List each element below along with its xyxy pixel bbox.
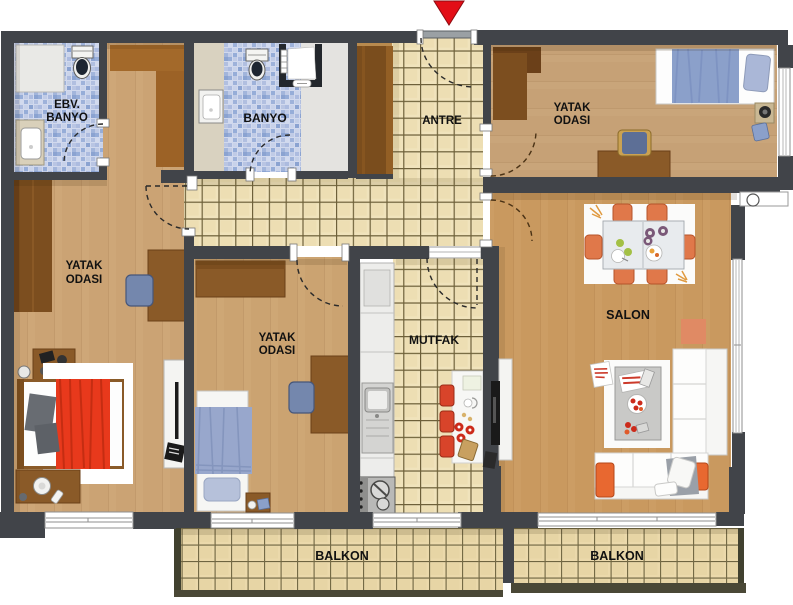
svg-text:BANYO: BANYO [243, 111, 286, 125]
svg-text:EBV.: EBV. [54, 99, 80, 111]
svg-text:BALKON: BALKON [315, 549, 368, 563]
svg-text:ODASI: ODASI [66, 274, 102, 286]
svg-text:BANYO: BANYO [46, 112, 88, 124]
svg-text:BALKON: BALKON [590, 549, 643, 563]
svg-text:SALON: SALON [606, 308, 650, 322]
svg-text:ODASI: ODASI [259, 345, 295, 357]
svg-text:YATAK: YATAK [66, 260, 104, 272]
svg-text:MUTFAK: MUTFAK [409, 333, 459, 347]
svg-text:YATAK: YATAK [554, 102, 592, 114]
svg-text:ANTRE: ANTRE [422, 115, 462, 127]
svg-text:ODASI: ODASI [554, 115, 590, 127]
svg-text:YATAK: YATAK [259, 332, 297, 344]
